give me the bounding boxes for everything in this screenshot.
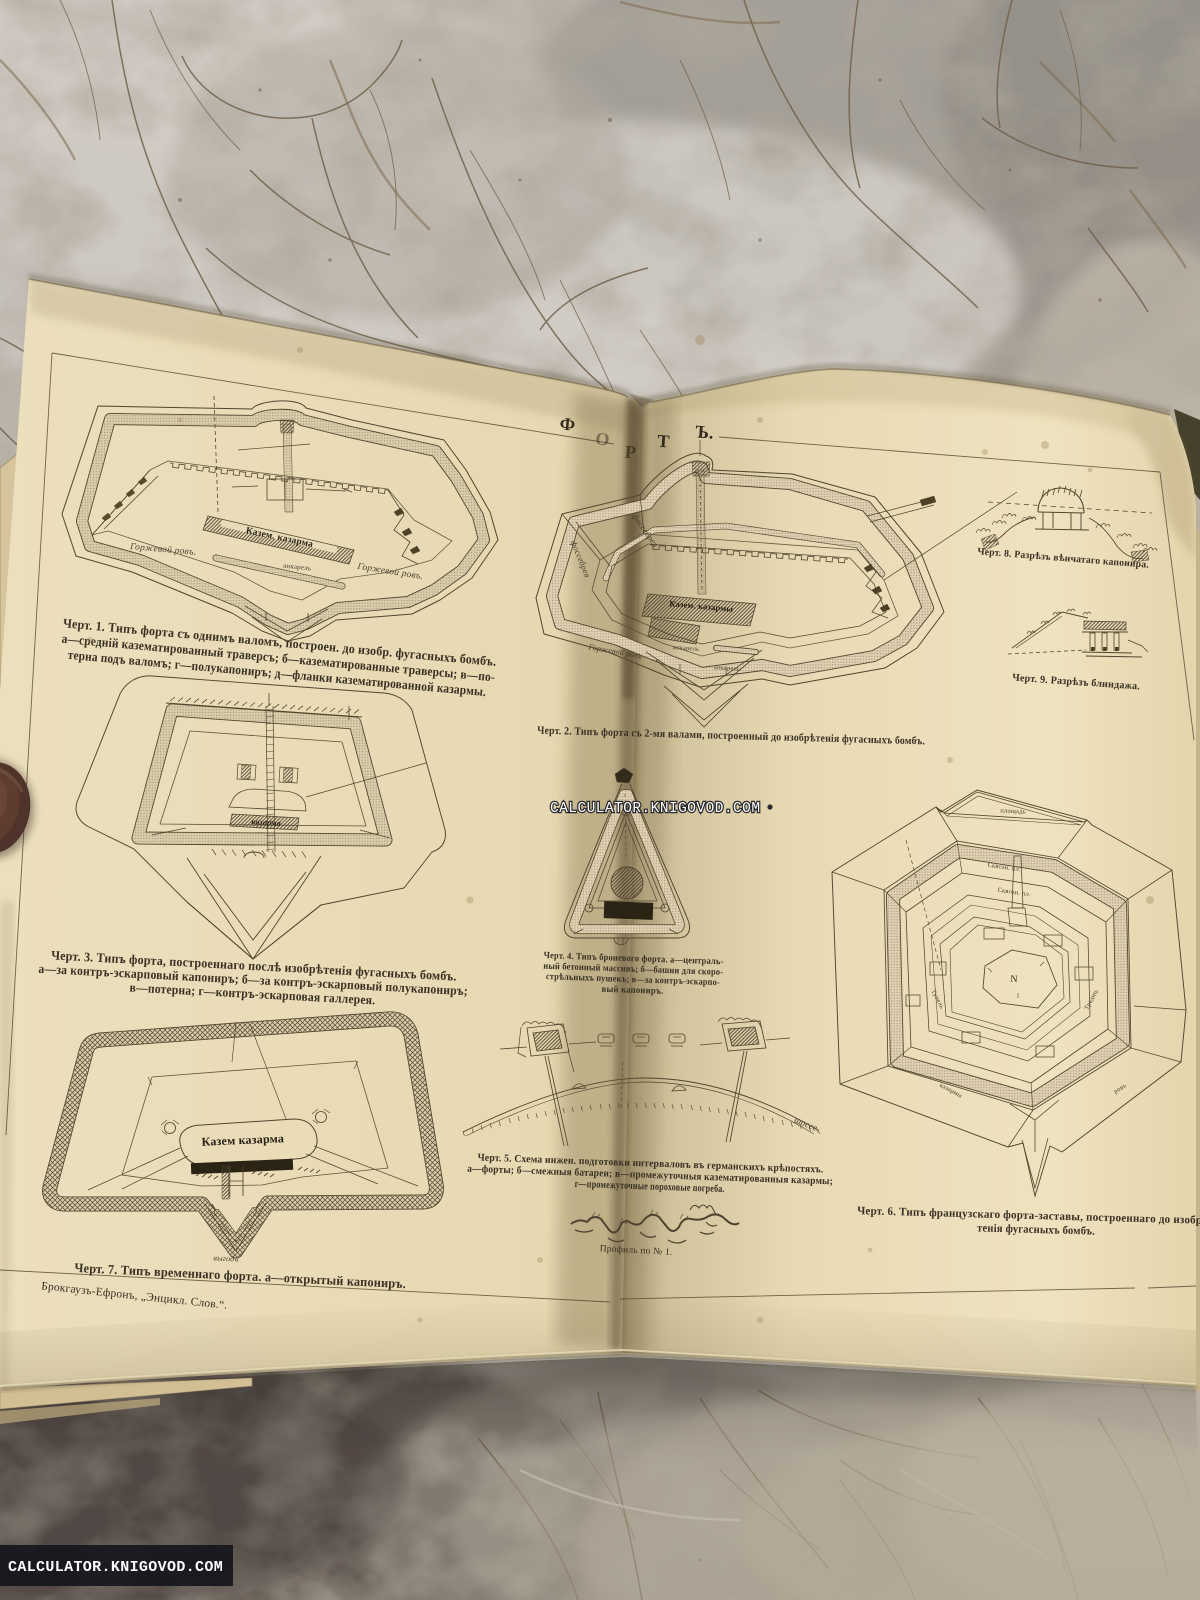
svg-text:Р: Р <box>624 442 637 463</box>
svg-text:Ф: Ф <box>559 413 576 434</box>
svg-text:Ъ.: Ъ. <box>695 421 715 442</box>
svg-text:Т: Т <box>657 431 670 452</box>
svg-text:N: N <box>1010 974 1018 985</box>
svg-text:CALCULATOR.KNIGOVOD.COM: CALCULATOR.KNIGOVOD.COM <box>8 1559 223 1576</box>
svg-text:вый капониръ.: вый капониръ. <box>601 984 663 997</box>
svg-text:О: О <box>595 428 611 449</box>
svg-text:площадь: площадь <box>1000 808 1026 816</box>
svg-text:CALCULATOR.KNIGOVOD.COM: CALCULATOR.KNIGOVOD.COM <box>550 801 760 817</box>
svg-text:выгодъ: выгодъ <box>213 1253 239 1263</box>
